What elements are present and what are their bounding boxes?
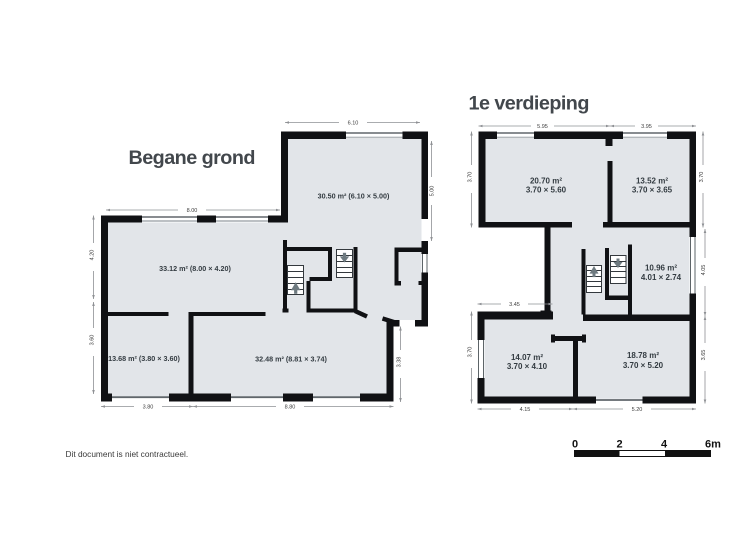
svg-text:4.01 × 2.74: 4.01 × 2.74 (641, 273, 682, 282)
svg-text:Dit document is niet contractu: Dit document is niet contractueel. (66, 449, 189, 459)
svg-text:32.48 m² (8.81 × 3.74): 32.48 m² (8.81 × 3.74) (255, 355, 327, 364)
svg-text:3.80: 3.80 (143, 405, 154, 411)
svg-text:Begane grond: Begane grond (129, 147, 255, 169)
svg-text:3.70 × 5.20: 3.70 × 5.20 (623, 361, 664, 370)
svg-text:14.07 m²: 14.07 m² (511, 353, 543, 362)
svg-text:4: 4 (661, 439, 668, 451)
svg-text:3.60: 3.60 (90, 335, 96, 346)
svg-text:4.05: 4.05 (701, 265, 707, 276)
svg-text:30.50 m² (6.10 × 5.00): 30.50 m² (6.10 × 5.00) (318, 192, 390, 201)
svg-text:5.00: 5.00 (430, 186, 436, 197)
svg-text:4.15: 4.15 (520, 407, 531, 413)
svg-text:1e verdieping: 1e verdieping (469, 93, 589, 115)
svg-text:6m: 6m (705, 439, 721, 451)
svg-text:6.10: 6.10 (348, 121, 359, 127)
svg-text:18.78 m²: 18.78 m² (627, 351, 659, 360)
svg-text:13.52 m²: 13.52 m² (636, 177, 668, 186)
svg-text:3.95: 3.95 (641, 124, 652, 130)
svg-text:3.70 × 4.10: 3.70 × 4.10 (507, 362, 548, 371)
svg-text:0: 0 (572, 439, 578, 451)
svg-text:5.95: 5.95 (537, 124, 548, 130)
svg-text:4.20: 4.20 (90, 250, 96, 261)
svg-text:13.68 m² (3.80 × 3.60): 13.68 m² (3.80 × 3.60) (108, 354, 180, 363)
svg-text:3.70 × 5.60: 3.70 × 5.60 (526, 186, 567, 195)
svg-text:8.00: 8.00 (187, 208, 198, 214)
svg-text:3.70 × 3.65: 3.70 × 3.65 (632, 186, 673, 195)
svg-text:8.80: 8.80 (285, 405, 296, 411)
svg-text:10.96 m²: 10.96 m² (645, 264, 677, 273)
svg-text:3.65: 3.65 (701, 350, 707, 361)
svg-text:3.70: 3.70 (699, 172, 705, 183)
svg-text:33.12 m² (8.00 × 4.20): 33.12 m² (8.00 × 4.20) (159, 264, 231, 273)
svg-text:5.20: 5.20 (632, 407, 643, 413)
svg-text:3.70: 3.70 (468, 172, 474, 183)
svg-text:3.70: 3.70 (468, 347, 474, 358)
svg-text:2: 2 (616, 439, 622, 451)
svg-text:20.70 m²: 20.70 m² (530, 177, 562, 186)
svg-text:3.45: 3.45 (509, 302, 520, 308)
svg-text:3.38: 3.38 (397, 357, 403, 368)
